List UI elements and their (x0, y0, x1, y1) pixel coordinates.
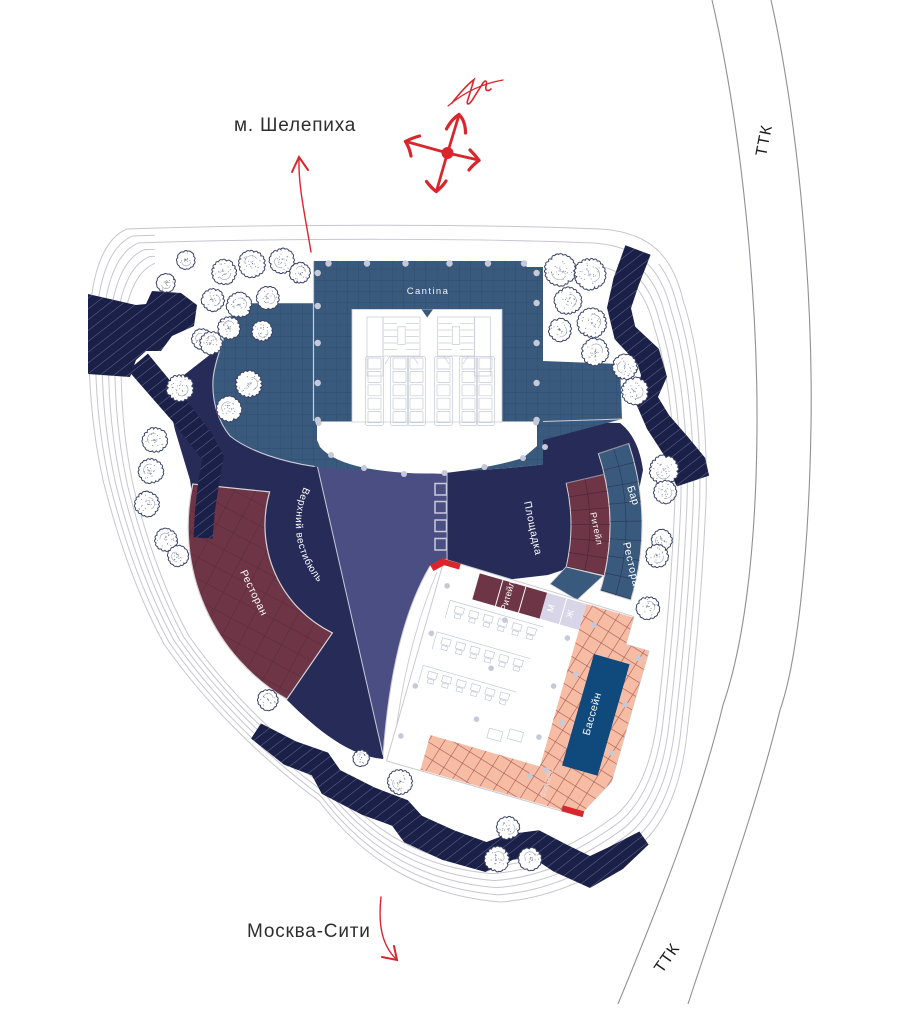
svg-text:м. Шелепиха: м. Шелепиха (234, 115, 356, 136)
svg-text:Москва-Сити: Москва-Сити (247, 921, 371, 942)
svg-text:Cantina: Cantina (407, 286, 450, 297)
